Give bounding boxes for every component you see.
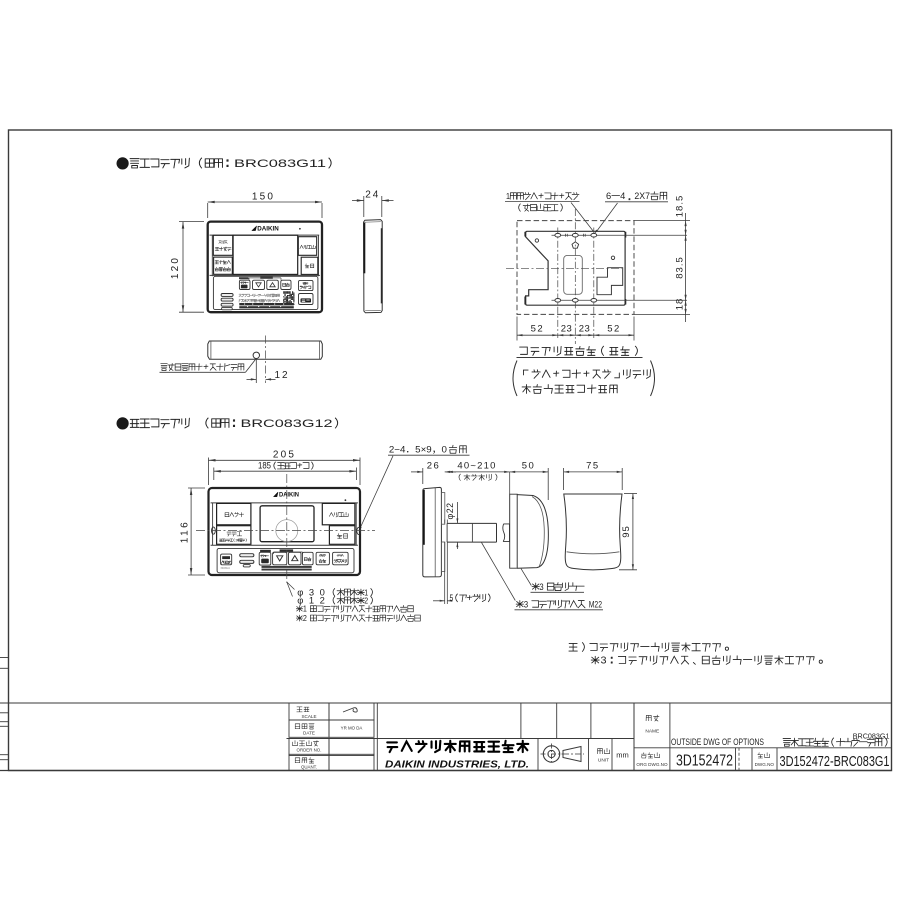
svg-text:6: 6 [606, 191, 611, 201]
svg-text:BRC083G11: BRC083G11 [234, 158, 326, 170]
svg-text:2: 2 [364, 595, 368, 605]
svg-text:18: 18 [674, 298, 685, 311]
svg-text:ORDER NO.: ORDER NO. [297, 748, 322, 753]
svg-text:QUANT.: QUANT. [301, 764, 317, 769]
svg-text:185: 185 [258, 461, 271, 471]
svg-text:2−4．5×9，0: 2−4．5×9，0 [389, 445, 447, 455]
svg-text:116: 116 [180, 520, 191, 543]
svg-text:50: 50 [522, 461, 536, 472]
svg-text:26: 26 [427, 461, 441, 472]
svg-text:φ22: φ22 [445, 503, 455, 520]
svg-text:OUTSIDE DWG OF OPTIONS: OUTSIDE DWG OF OPTIONS [671, 737, 764, 747]
svg-text:52: 52 [531, 324, 545, 335]
svg-text:40~210: 40~210 [457, 461, 496, 472]
svg-text:3: 3 [539, 582, 543, 592]
svg-text:3: 3 [235, 538, 237, 542]
svg-text:DAIKIN: DAIKIN [279, 492, 299, 499]
svg-text:SCALE: SCALE [301, 714, 316, 719]
svg-text:3: 3 [524, 599, 528, 609]
svg-text:120: 120 [170, 256, 181, 279]
svg-text:3D152472-BRC083G1: 3D152472-BRC083G1 [780, 754, 890, 770]
svg-text:mm: mm [616, 751, 629, 760]
svg-text:NAME: NAME [645, 729, 659, 735]
svg-text:BRC083G12: BRC083G12 [241, 418, 333, 430]
svg-text:BRC083G12: BRC083G12 [221, 566, 230, 570]
svg-text:4: 4 [620, 191, 625, 201]
svg-text:52: 52 [607, 324, 621, 335]
svg-text:ORG DWG.NO: ORG DWG.NO [636, 762, 668, 767]
svg-text:BRC083G1: BRC083G1 [853, 732, 890, 741]
svg-text:YR MO DA: YR MO DA [341, 726, 363, 731]
svg-text:M22: M22 [589, 599, 602, 609]
svg-text:150: 150 [252, 192, 275, 203]
svg-text:18.5: 18.5 [674, 195, 685, 218]
svg-text:23: 23 [579, 324, 591, 335]
svg-text:12: 12 [275, 370, 290, 381]
svg-text:83.5: 83.5 [674, 256, 685, 279]
svg-text:UNIT: UNIT [598, 758, 609, 764]
svg-text:205: 205 [273, 450, 296, 461]
svg-text:3D152472: 3D152472 [676, 753, 733, 770]
svg-text:23: 23 [561, 324, 573, 335]
svg-text:1: 1 [303, 605, 307, 614]
svg-text:DWG.NO: DWG.NO [755, 762, 775, 767]
svg-text:2X7: 2X7 [634, 191, 650, 201]
svg-text:5: 5 [450, 593, 454, 603]
svg-text:DATE: DATE [303, 731, 315, 736]
svg-text:95: 95 [621, 525, 632, 538]
svg-text:24: 24 [365, 190, 380, 201]
svg-text:DAIKIN: DAIKIN [257, 226, 279, 233]
svg-text:75: 75 [586, 461, 600, 472]
svg-text:DAIKIN INDUSTRIES, LTD.: DAIKIN INDUSTRIES, LTD. [385, 760, 529, 771]
svg-text:2: 2 [303, 614, 307, 623]
svg-text:3: 3 [601, 656, 608, 667]
svg-text:1: 1 [506, 191, 510, 201]
